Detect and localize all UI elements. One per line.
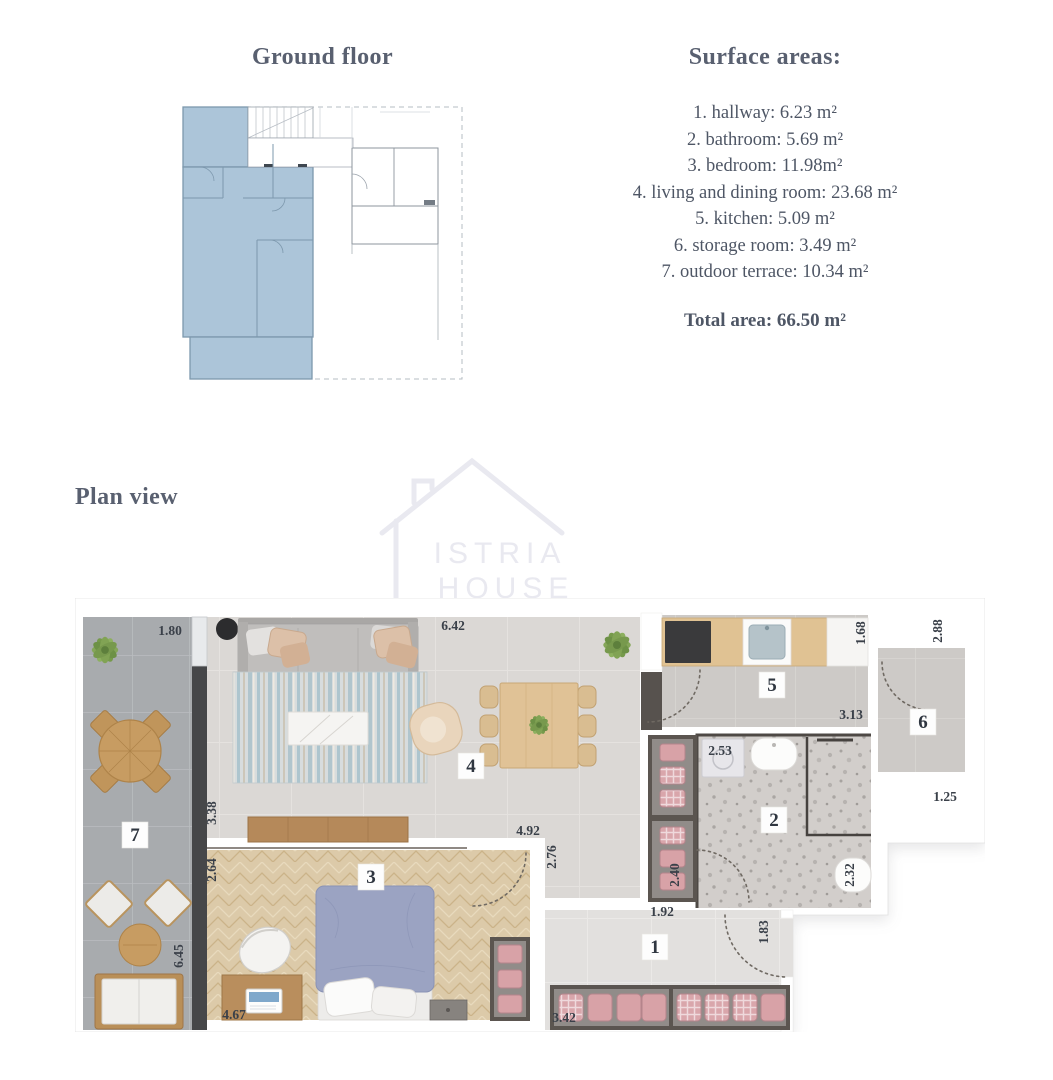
watermark-line1: ISTRIA: [434, 537, 567, 570]
sideboard: [248, 817, 408, 842]
kitchen-furniture: [662, 618, 868, 666]
dim-wardrobe-width: 3.42: [552, 1010, 576, 1025]
surface-area-item-bathroom: 2. bathroom: 5.69 m²: [563, 127, 967, 154]
surface-area-item-living: 4. living and dining room: 23.68 m²: [563, 180, 967, 207]
dim-bedroom-offset: 2.64: [204, 858, 219, 882]
dim-living-lower-width: 4.92: [516, 823, 540, 838]
dim-hallway-width: 1.92: [650, 904, 674, 919]
dim-terrace-width: 1.80: [158, 623, 182, 638]
dim-kitchen-depth: 1.68: [853, 621, 868, 645]
dim-bathroom-depth: 2.32: [842, 863, 857, 887]
dim-bedroom-width: 4.67: [222, 1007, 246, 1022]
dim-storage-width: 1.25: [933, 789, 957, 804]
dim-living-width: 6.42: [441, 618, 465, 633]
coffee-table: [288, 712, 368, 745]
room-number-bedroom: 3: [366, 867, 376, 888]
room-number-storage: 6: [918, 712, 928, 733]
total-area: Total area: 66.50 m²: [563, 310, 967, 332]
room-number-hallway: 1: [650, 937, 660, 958]
entry-threshold: [781, 915, 793, 977]
room-number-kitchen: 5: [767, 675, 777, 696]
dim-closet-height: 2.40: [667, 863, 682, 887]
dim-kitchen-width: 3.13: [839, 707, 863, 722]
dim-living-lower-depth: 2.76: [544, 845, 559, 869]
nightstand: [430, 1000, 467, 1020]
kitchen-sink: [743, 619, 791, 665]
room-number-living: 4: [466, 756, 476, 777]
bathroom-sink: [751, 738, 797, 770]
floor-lamp: [216, 618, 238, 640]
stove: [665, 621, 711, 663]
surface-areas-title: Surface areas:: [563, 44, 967, 71]
room-number-bathroom: 2: [769, 810, 779, 831]
surface-area-item-terrace: 7. outdoor terrace: 10.34 m²: [563, 259, 967, 286]
surface-area-item-storage: 6. storage room: 3.49 m²: [563, 233, 967, 260]
dim-storage-height: 2.88: [930, 619, 945, 643]
dim-terrace-height: 6.45: [171, 944, 186, 968]
dim-bathroom-width: 2.53: [708, 743, 732, 758]
surface-areas-section: Surface areas: 1. hallway: 6.23 m² 2. ba…: [563, 44, 967, 332]
bedroom-wardrobe: [490, 937, 530, 1021]
hallway-wardrobe: [550, 985, 790, 1030]
istria-house-watermark: ISTRIA HOUSE: [370, 445, 585, 620]
plan-view-title: Plan view: [75, 484, 178, 511]
stairs: [248, 107, 353, 167]
terrace-bench: [95, 974, 183, 1029]
dining-table: [480, 683, 596, 768]
sofa: [238, 618, 419, 680]
surface-area-item-hallway: 1. hallway: 6.23 m²: [563, 100, 967, 127]
surface-area-item-bedroom: 3. bedroom: 11.98m²: [563, 153, 967, 180]
surface-area-item-kitchen: 5. kitchen: 5.09 m²: [563, 206, 967, 233]
bed: [316, 886, 434, 1020]
room-number-terrace: 7: [130, 825, 140, 846]
terrace-glass-door: [192, 617, 207, 666]
ground-floor-title: Ground floor: [180, 44, 465, 71]
apartment-plan: 1.80 6.42 1.68 2.88 3.13 3.38 2.64 4.92 …: [75, 598, 985, 1032]
dim-living-depth: 3.38: [204, 801, 219, 825]
dim-entry-depth: 1.83: [756, 920, 771, 944]
ground-floor-schematic: [180, 104, 465, 382]
surface-areas-list: 1. hallway: 6.23 m² 2. bathroom: 5.69 m²…: [563, 100, 967, 286]
